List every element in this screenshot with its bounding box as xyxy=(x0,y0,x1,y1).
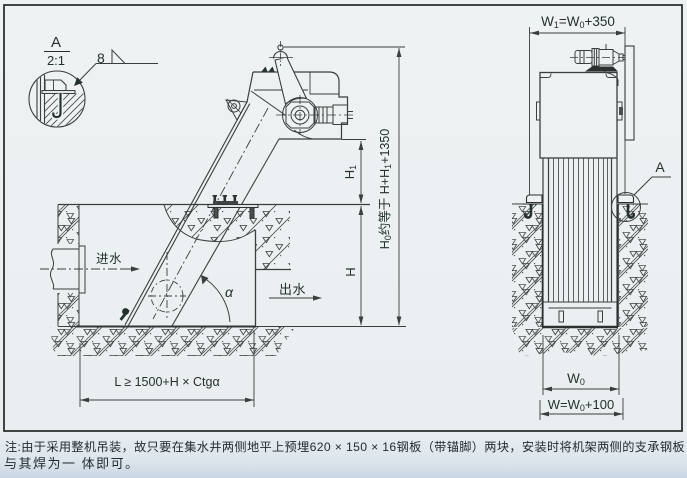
svg-text:A: A xyxy=(655,159,665,175)
svg-text:W1=W0+350: W1=W0+350 xyxy=(541,14,615,30)
svg-text:出水: 出水 xyxy=(279,282,306,297)
svg-text:注:由于采用整机吊装，故只要在集水井两侧地平上预埋620 ×: 注:由于采用整机吊装，故只要在集水井两侧地平上预埋620 × 150 × 16钢… xyxy=(5,439,685,454)
svg-text:A: A xyxy=(51,34,61,51)
svg-text:L ≥ 1500+H × Ctgα: L ≥ 1500+H × Ctgα xyxy=(114,375,219,389)
svg-text:与其焊为一 体即可。: 与其焊为一 体即可。 xyxy=(4,456,140,471)
svg-text:H: H xyxy=(343,267,358,276)
svg-text:α: α xyxy=(225,284,234,300)
svg-text:H0约等于 H+H1+1350: H0约等于 H+H1+1350 xyxy=(377,129,393,250)
svg-text:2:1: 2:1 xyxy=(47,53,65,68)
svg-text:进水: 进水 xyxy=(96,252,122,266)
